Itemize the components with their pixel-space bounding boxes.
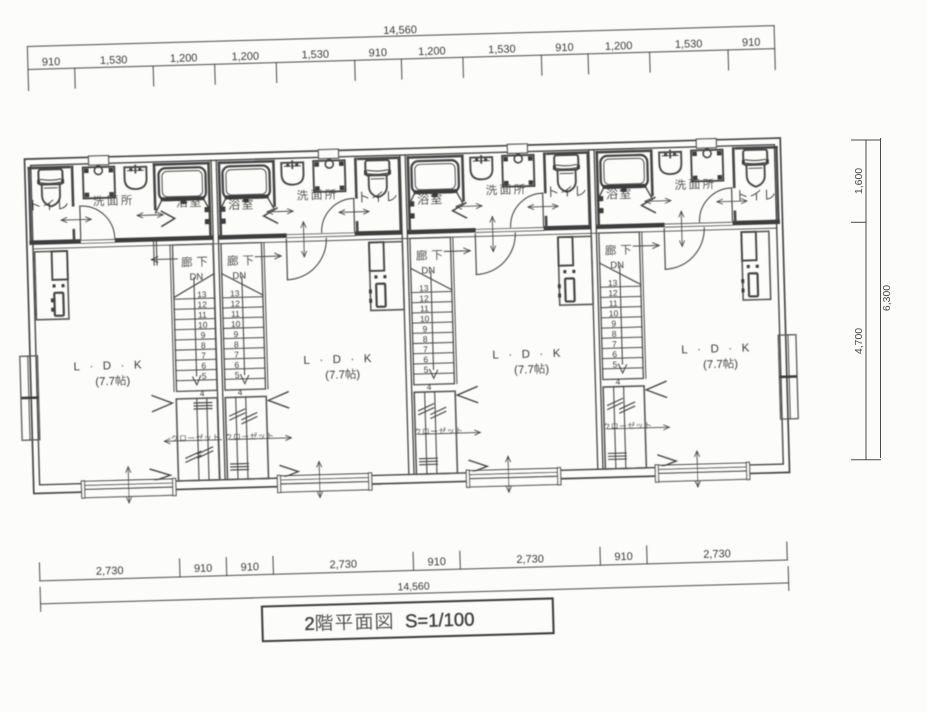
svg-text:11: 11 (198, 310, 207, 320)
svg-text:5: 5 (612, 359, 617, 369)
svg-text:13: 13 (608, 278, 618, 288)
svg-text:1,200: 1,200 (170, 52, 198, 65)
svg-text:1,200: 1,200 (605, 40, 633, 53)
svg-text:1,530: 1,530 (675, 38, 703, 51)
svg-text:14,560: 14,560 (383, 24, 417, 37)
svg-text:12: 12 (419, 293, 429, 303)
svg-text:10: 10 (198, 320, 208, 330)
svg-text:): ) (734, 358, 738, 370)
svg-text:910: 910 (194, 563, 213, 576)
svg-text:1,530: 1,530 (488, 43, 516, 56)
svg-text:8: 8 (234, 339, 239, 349)
svg-text:8: 8 (201, 340, 206, 350)
svg-text:10: 10 (231, 319, 241, 329)
svg-text:(7.7: (7.7 (514, 364, 534, 377)
svg-text:(7.7: (7.7 (95, 376, 115, 389)
svg-text:12: 12 (197, 299, 207, 309)
svg-text:2,730: 2,730 (96, 565, 124, 578)
svg-text:11: 11 (420, 303, 429, 313)
svg-text:): ) (126, 375, 130, 387)
svg-text:6: 6 (234, 360, 239, 370)
svg-text:): ) (356, 369, 360, 381)
svg-text:4,700: 4,700 (853, 328, 865, 354)
svg-text:11: 11 (231, 309, 240, 319)
svg-text:9: 9 (422, 324, 427, 334)
svg-text:(7.7: (7.7 (325, 369, 345, 382)
svg-text:910: 910 (368, 47, 387, 60)
svg-text:6: 6 (201, 361, 206, 371)
svg-text:1,530: 1,530 (301, 49, 329, 62)
svg-text:2,730: 2,730 (329, 558, 357, 571)
svg-text:7: 7 (612, 339, 617, 349)
svg-text:4: 4 (615, 377, 620, 387)
svg-text:5: 5 (424, 365, 429, 375)
svg-text:L·D·K: L·D·K (73, 359, 151, 373)
svg-text:1,200: 1,200 (418, 45, 446, 58)
svg-text:6: 6 (423, 354, 428, 364)
svg-text:12: 12 (608, 288, 618, 298)
svg-text:4: 4 (200, 388, 205, 398)
svg-text:): ) (545, 364, 549, 376)
svg-text:5: 5 (202, 371, 207, 381)
svg-text:10: 10 (609, 308, 619, 318)
svg-text:2,730: 2,730 (516, 553, 544, 566)
svg-text:8: 8 (423, 334, 428, 344)
svg-text:L·D·K: L·D·K (492, 347, 570, 361)
svg-text:8: 8 (612, 329, 617, 339)
svg-text:910: 910 (42, 56, 61, 69)
svg-text:910: 910 (614, 551, 633, 564)
svg-text:11: 11 (609, 298, 618, 308)
svg-text:L·D·K: L·D·K (681, 342, 759, 356)
svg-text:12: 12 (230, 298, 240, 308)
svg-text:910: 910 (427, 556, 446, 569)
svg-text:13: 13 (230, 288, 240, 298)
svg-text:13: 13 (197, 289, 207, 299)
svg-text:14,560: 14,560 (397, 580, 430, 593)
svg-text:1,530: 1,530 (100, 54, 128, 67)
svg-text:1,200: 1,200 (231, 51, 259, 64)
svg-text:13: 13 (419, 283, 429, 293)
svg-text:7: 7 (234, 350, 239, 360)
svg-text:910: 910 (555, 42, 574, 55)
svg-text:1,600: 1,600 (853, 168, 865, 194)
svg-text:910: 910 (241, 561, 260, 574)
svg-text:2: 2 (304, 613, 315, 634)
svg-text:2,730: 2,730 (703, 548, 731, 561)
svg-text:7: 7 (201, 350, 206, 360)
svg-text:(7.7: (7.7 (703, 359, 723, 372)
svg-text:9: 9 (200, 330, 205, 340)
svg-text:5: 5 (235, 370, 240, 380)
svg-text:7: 7 (423, 344, 428, 354)
svg-text:6: 6 (612, 349, 617, 359)
svg-text:6,300: 6,300 (881, 285, 893, 311)
svg-text:4: 4 (238, 387, 243, 397)
svg-text:9: 9 (233, 329, 238, 339)
svg-text:S=1/100: S=1/100 (394, 608, 474, 631)
svg-text:9: 9 (611, 319, 616, 329)
svg-text:4: 4 (427, 382, 432, 392)
svg-text:L·D·K: L·D·K (303, 353, 381, 367)
svg-text:10: 10 (420, 314, 430, 324)
svg-text:910: 910 (742, 37, 761, 50)
